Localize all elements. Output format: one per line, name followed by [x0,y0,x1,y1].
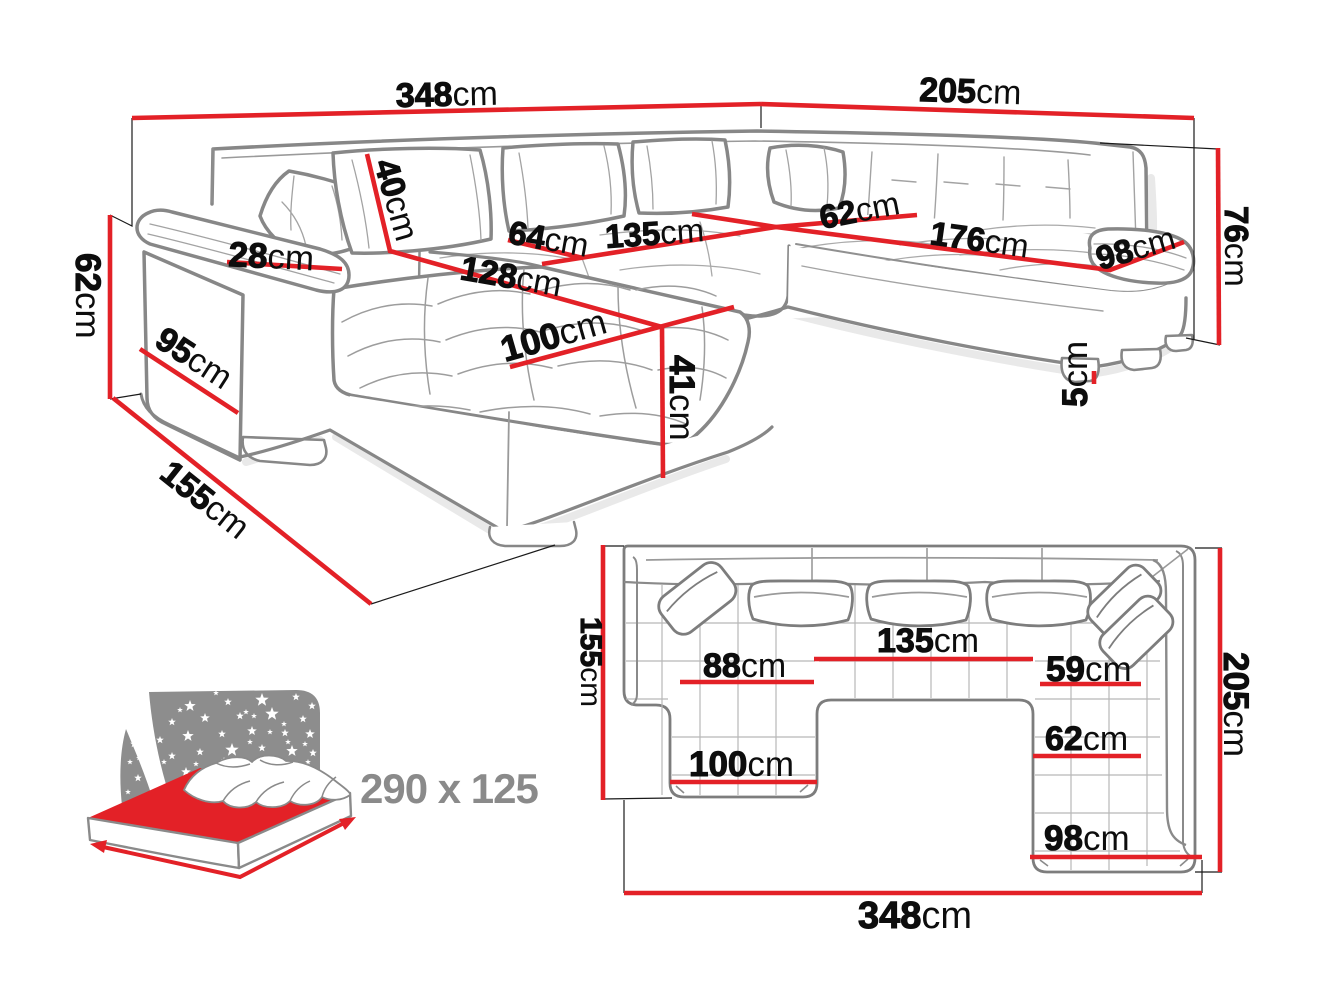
svg-text:205cm: 205cm [1216,652,1255,757]
svg-text:62cm: 62cm [1045,720,1128,758]
svg-text:135cm: 135cm [604,211,705,255]
svg-text:76cm: 76cm [1218,206,1255,287]
svg-text:290 x 125: 290 x 125 [360,765,538,812]
svg-text:205cm: 205cm [919,71,1022,112]
svg-text:98cm: 98cm [1044,819,1130,858]
svg-text:59cm: 59cm [1046,650,1132,689]
svg-text:28cm: 28cm [228,235,316,278]
svg-text:348cm: 348cm [858,895,972,937]
svg-text:348cm: 348cm [395,75,498,115]
svg-text:62cm: 62cm [68,253,107,339]
svg-text:88cm: 88cm [703,647,786,685]
svg-text:5cm: 5cm [1056,341,1095,407]
svg-text:100cm: 100cm [689,745,794,784]
svg-text:135cm: 135cm [877,622,979,660]
svg-text:155cm: 155cm [574,617,607,707]
svg-text:41cm: 41cm [662,355,701,441]
